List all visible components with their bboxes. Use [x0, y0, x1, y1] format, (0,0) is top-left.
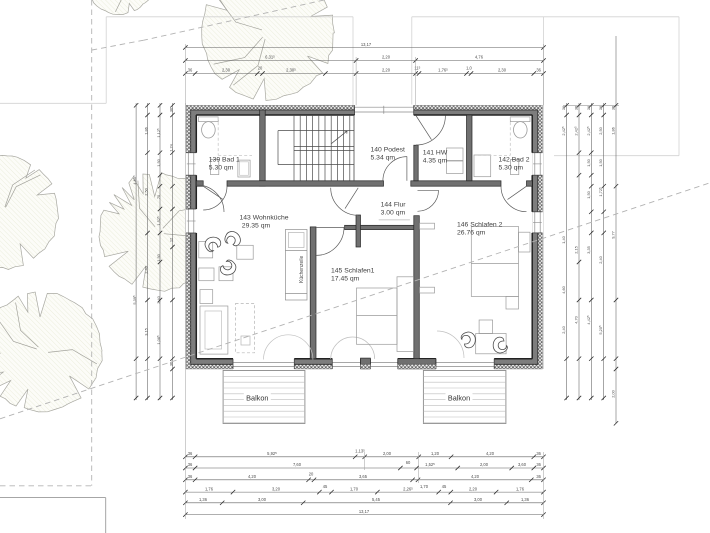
svg-text:140 Podest: 140 Podest: [371, 147, 406, 154]
svg-text:13,17: 13,17: [359, 509, 370, 514]
svg-text:145 Schlafen1: 145 Schlafen1: [331, 268, 375, 275]
svg-text:2,30: 2,30: [222, 68, 231, 73]
svg-text:139 Bad 1: 139 Bad 1: [209, 157, 240, 164]
svg-text:3,15: 3,15: [144, 328, 149, 336]
svg-text:1,86: 1,86: [144, 127, 149, 135]
svg-text:36: 36: [536, 68, 541, 73]
svg-text:4,60: 4,60: [561, 285, 566, 293]
svg-text:1,36: 1,36: [521, 497, 530, 502]
svg-text:3.00 qm: 3.00 qm: [381, 210, 406, 217]
svg-text:36: 36: [536, 462, 541, 467]
svg-text:1,50: 1,50: [156, 158, 161, 166]
svg-text:1,76: 1,76: [516, 486, 525, 491]
svg-text:9,77: 9,77: [611, 231, 616, 239]
svg-text:Küchenzeile: Küchenzeile: [299, 256, 305, 283]
svg-text:1,70: 1,70: [420, 484, 429, 489]
svg-text:3,20: 3,20: [272, 486, 281, 491]
svg-text:1,86: 1,86: [611, 127, 616, 135]
svg-text:26.76 qm: 26.76 qm: [457, 230, 486, 237]
svg-text:5.30 qm: 5.30 qm: [209, 165, 234, 172]
svg-text:5.34 qm: 5.34 qm: [371, 155, 396, 162]
svg-text:3,65: 3,65: [359, 474, 368, 479]
svg-text:1,40: 1,40: [561, 235, 566, 243]
svg-text:7,60: 7,60: [293, 462, 302, 467]
svg-text:2,00: 2,00: [611, 389, 616, 397]
svg-text:1,76: 1,76: [205, 486, 214, 491]
svg-text:45: 45: [323, 484, 328, 489]
svg-text:3,00: 3,00: [474, 497, 483, 502]
svg-text:36: 36: [188, 451, 193, 456]
svg-text:4,20: 4,20: [486, 451, 495, 456]
svg-text:36: 36: [574, 106, 579, 110]
svg-text:36: 36: [561, 106, 566, 110]
svg-text:1,50: 1,50: [156, 253, 161, 261]
svg-text:29.35 qm: 29.35 qm: [242, 223, 271, 230]
svg-text:2,20: 2,20: [382, 55, 391, 60]
svg-text:20: 20: [258, 65, 263, 70]
svg-text:1,50: 1,50: [598, 158, 603, 166]
svg-text:1,20: 1,20: [431, 451, 440, 456]
svg-text:1,74: 1,74: [169, 143, 174, 151]
svg-text:5,45: 5,45: [372, 497, 381, 502]
svg-text:36: 36: [188, 68, 193, 73]
svg-text:1,70: 1,70: [350, 486, 359, 491]
svg-text:5.30 qm: 5.30 qm: [499, 165, 524, 172]
svg-text:2,00: 2,00: [383, 451, 392, 456]
svg-text:2,20: 2,20: [469, 486, 478, 491]
svg-text:4.35 qm: 4.35 qm: [423, 158, 448, 165]
svg-text:Balkon: Balkon: [246, 393, 268, 402]
svg-text:3,00: 3,00: [258, 497, 267, 502]
svg-text:2,40: 2,40: [156, 295, 161, 303]
svg-text:13,17: 13,17: [361, 42, 372, 47]
svg-text:2,20: 2,20: [382, 68, 391, 73]
svg-text:1,36: 1,36: [199, 497, 208, 502]
svg-text:45: 45: [442, 484, 447, 489]
svg-text:2,40: 2,40: [598, 255, 603, 263]
svg-text:36: 36: [611, 106, 616, 110]
svg-text:4,76: 4,76: [475, 55, 484, 60]
svg-text:2,40: 2,40: [144, 265, 149, 273]
svg-text:36: 36: [536, 451, 541, 456]
svg-text:36: 36: [169, 108, 174, 112]
svg-text:146 Schlafen 2: 146 Schlafen 2: [457, 222, 503, 229]
svg-text:1,50: 1,50: [586, 190, 591, 198]
svg-text:36: 36: [188, 462, 193, 467]
svg-text:141 HW: 141 HW: [423, 150, 448, 157]
svg-text:3,35: 3,35: [586, 246, 591, 254]
svg-text:36: 36: [598, 106, 603, 110]
svg-text:36: 36: [188, 474, 193, 479]
svg-text:3,60: 3,60: [518, 462, 527, 467]
svg-text:Balkon: Balkon: [448, 393, 470, 402]
svg-text:1,0: 1,0: [466, 65, 472, 70]
svg-text:2,00: 2,00: [480, 462, 489, 467]
svg-text:4,20: 4,20: [471, 474, 480, 479]
svg-text:144 Flur: 144 Flur: [381, 202, 407, 209]
svg-text:2,50: 2,50: [144, 187, 149, 195]
svg-text:4,70: 4,70: [574, 315, 579, 323]
svg-text:2,30: 2,30: [498, 68, 507, 73]
svg-text:20: 20: [309, 472, 314, 477]
svg-text:143 Wohnküche: 143 Wohnküche: [240, 215, 289, 222]
svg-text:2,50: 2,50: [598, 126, 603, 134]
svg-text:36: 36: [586, 106, 591, 110]
svg-text:4,20: 4,20: [248, 474, 257, 479]
svg-text:17.45 qm: 17.45 qm: [331, 276, 360, 283]
svg-text:1,50: 1,50: [586, 158, 591, 166]
svg-text:36: 36: [169, 362, 174, 366]
svg-text:12: 12: [169, 238, 174, 242]
svg-text:142 Bad 2: 142 Bad 2: [499, 157, 530, 164]
svg-text:36: 36: [536, 474, 541, 479]
svg-text:2,15: 2,15: [574, 246, 579, 254]
svg-text:60: 60: [406, 460, 411, 465]
svg-text:2,40: 2,40: [561, 325, 566, 333]
